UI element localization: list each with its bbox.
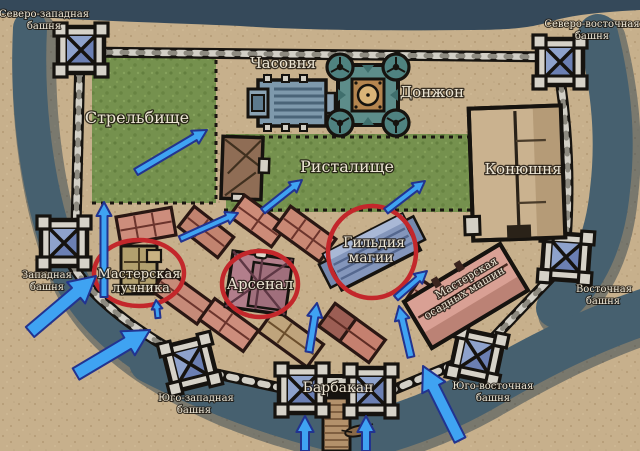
map-label-chapel: Часовня (250, 54, 316, 72)
map-label-archer-shop-1: Мастерская (98, 267, 181, 282)
map-label-magic-guild-2: магии (348, 250, 393, 266)
map-label-ne-tower-1: Северо-восточная (544, 19, 639, 30)
map-label-se-tower-2: башня (476, 393, 510, 404)
tower-northwest (54, 23, 108, 77)
map-label-barbican: Барбакан (303, 380, 374, 396)
map-label-lists-field: Ристалище (300, 157, 394, 176)
castle-map: Северо-западнаябашняСеверо-восточнаябашн… (0, 0, 640, 451)
map-label-e-tower-2: башня (586, 296, 620, 307)
map-label-e-tower-1: Восточная (576, 284, 632, 295)
map-label-w-tower-1: Западная (22, 270, 72, 281)
map-label-archer-shop-2: лучника (112, 281, 170, 296)
chapel-building (248, 75, 335, 131)
map-label-ne-tower-2: башня (575, 31, 609, 42)
map-label-magic-guild-1: Гильдия (343, 235, 405, 251)
map-label-se-tower-1: Юго-восточная (453, 381, 534, 392)
tower-southwest (157, 331, 222, 396)
field-shooting-range (92, 54, 216, 203)
map-label-shooting-range: Стрельбище (85, 108, 189, 127)
map-label-sw-tower-1: Юго-западная (158, 393, 234, 404)
map-label-stable: Конюшня (484, 160, 561, 178)
tower-west (37, 216, 91, 270)
map-label-nw-tower-1: Северо-западная (0, 9, 89, 20)
map-label-arsenal: Арсенал (227, 275, 294, 293)
map-label-sw-tower-2: башня (177, 405, 211, 416)
map-label-donjon: Донжон (400, 83, 464, 101)
tower-northeast (533, 35, 587, 89)
donjon-keep (327, 54, 409, 136)
brown-house (221, 136, 270, 202)
map-label-w-tower-2: башня (30, 282, 64, 293)
map-label-nw-tower-2: башня (27, 21, 61, 32)
